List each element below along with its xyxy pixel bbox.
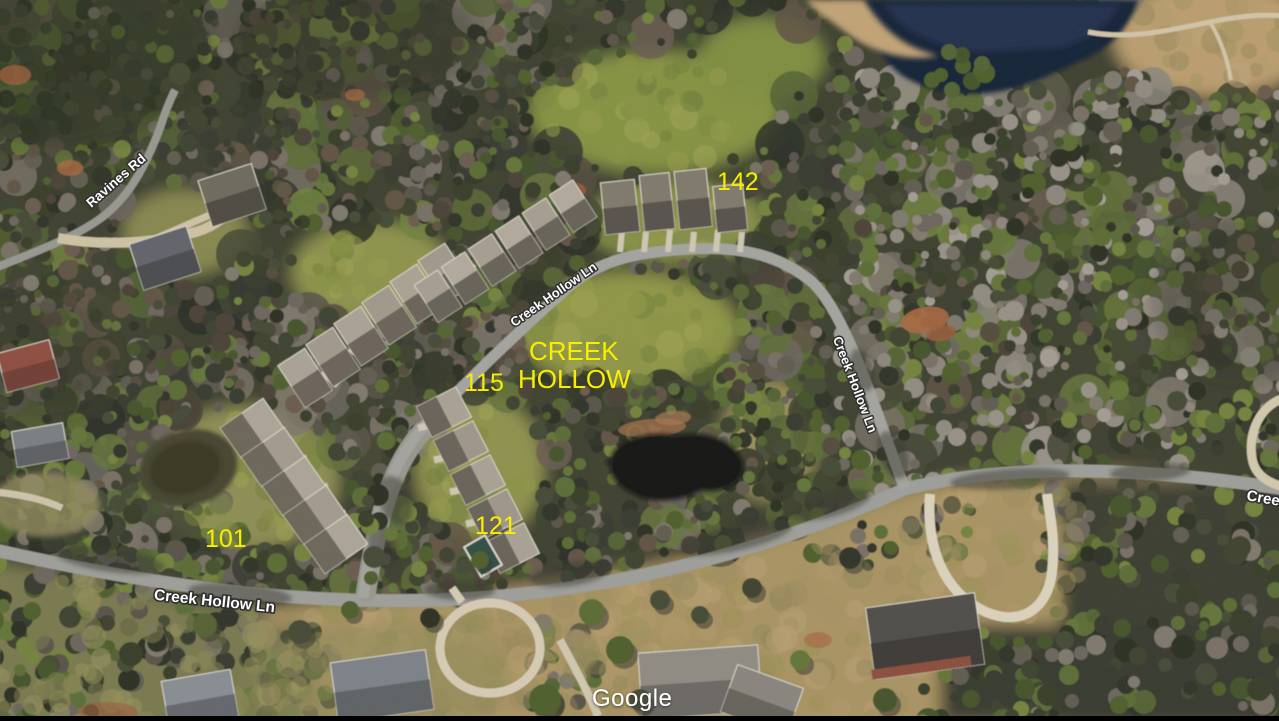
svg-text:142: 142 bbox=[717, 168, 759, 196]
svg-text:101: 101 bbox=[205, 525, 247, 553]
svg-text:121: 121 bbox=[475, 512, 517, 540]
svg-text:HOLLOW: HOLLOW bbox=[518, 364, 631, 394]
svg-text:115: 115 bbox=[464, 369, 504, 397]
svg-text:CREEK: CREEK bbox=[529, 336, 619, 366]
svg-text:Google: Google bbox=[592, 685, 672, 712]
